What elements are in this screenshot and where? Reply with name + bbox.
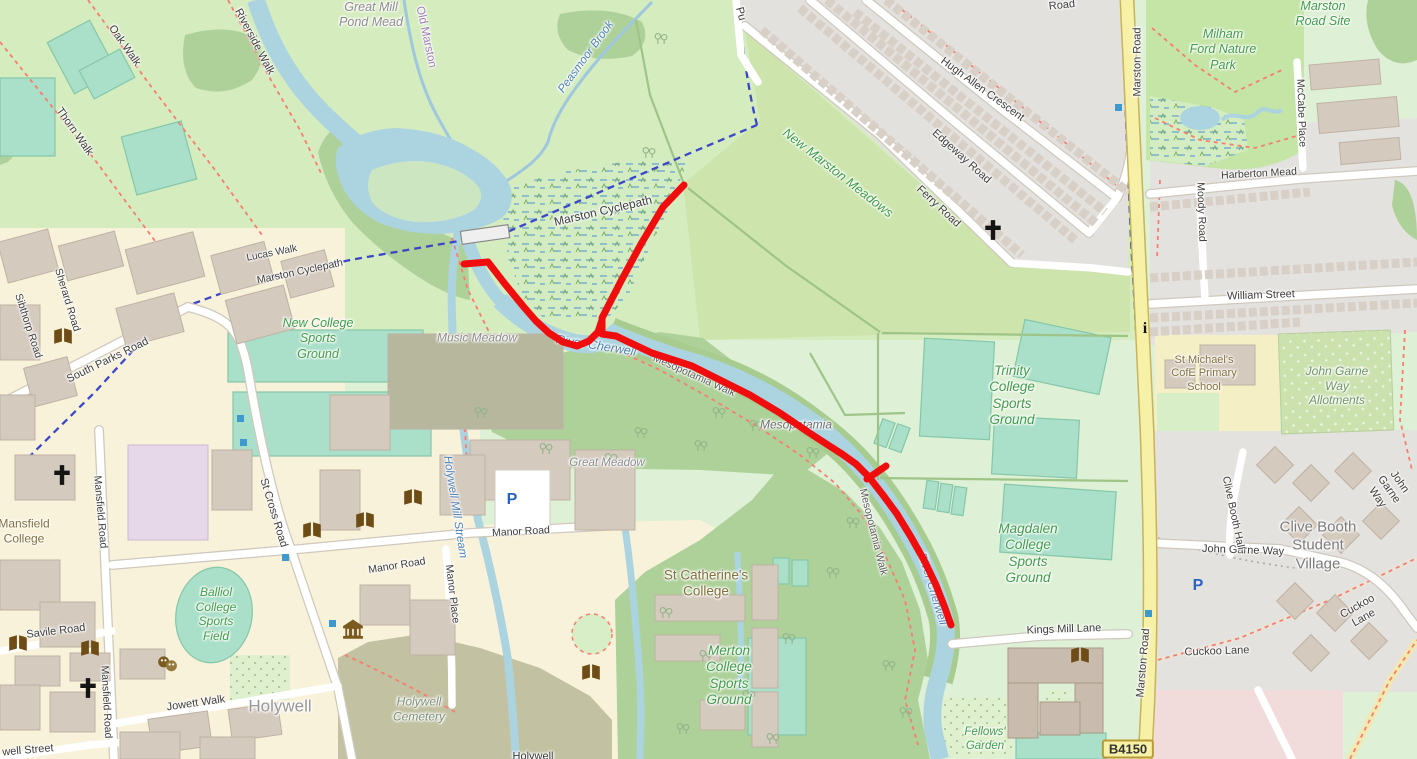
info-icon: i (1143, 320, 1148, 337)
map-base-layer: P P i (0, 0, 1417, 759)
milham-pond (1180, 106, 1220, 130)
parking-icon: P (507, 491, 518, 508)
parking-icon: P (1193, 577, 1204, 594)
map-canvas[interactable]: P P i Great Mill Pond Mead Oak Walk Thor… (0, 0, 1417, 759)
